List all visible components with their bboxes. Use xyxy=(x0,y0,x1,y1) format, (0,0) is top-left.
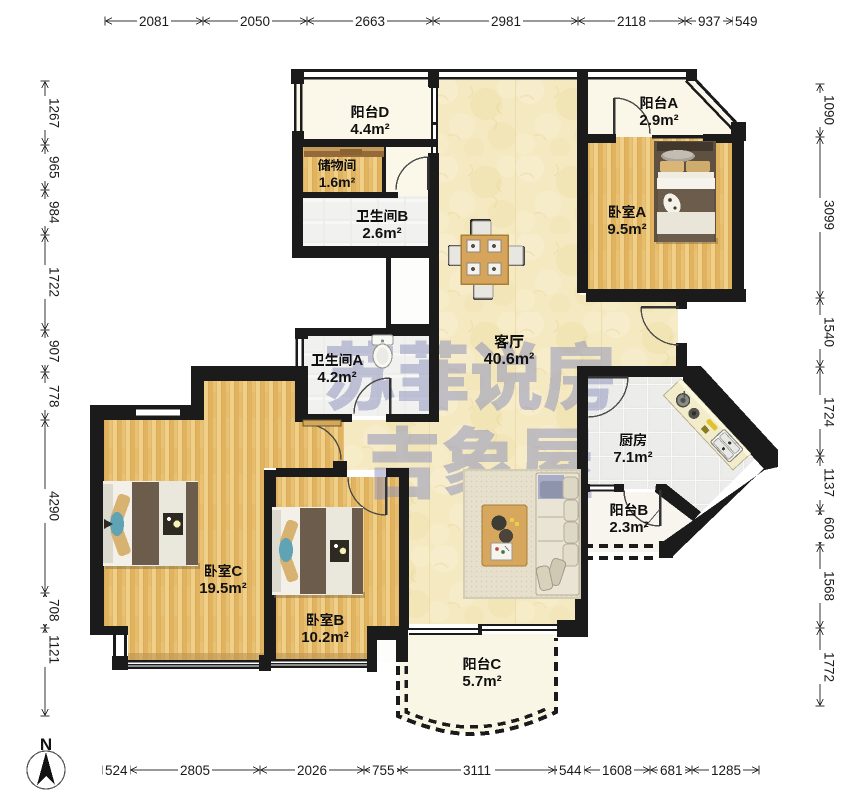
svg-text:1772: 1772 xyxy=(822,652,837,682)
svg-text:40.6m²: 40.6m² xyxy=(484,351,535,368)
svg-text:4290: 4290 xyxy=(47,491,62,521)
svg-text:755: 755 xyxy=(372,763,395,778)
svg-text:3111: 3111 xyxy=(463,763,491,778)
svg-text:10.2m²: 10.2m² xyxy=(301,629,349,646)
svg-text:1090: 1090 xyxy=(822,95,837,125)
svg-text:1267: 1267 xyxy=(47,98,62,128)
svg-text:2118: 2118 xyxy=(617,14,646,29)
svg-text:3099: 3099 xyxy=(822,200,837,230)
svg-text:984: 984 xyxy=(47,201,62,224)
svg-text:937: 937 xyxy=(698,14,721,29)
svg-text:D: D xyxy=(378,104,389,121)
svg-text:708: 708 xyxy=(47,599,62,622)
svg-text:2981: 2981 xyxy=(491,14,521,29)
svg-text:549: 549 xyxy=(735,14,758,29)
svg-text:7.1m²: 7.1m² xyxy=(613,449,652,466)
svg-text:2663: 2663 xyxy=(355,14,385,29)
svg-text:5.7m²: 5.7m² xyxy=(462,673,501,690)
svg-text:B: B xyxy=(333,612,344,629)
svg-text:1722: 1722 xyxy=(47,267,62,297)
svg-text:9.5m²: 9.5m² xyxy=(607,221,646,238)
svg-text:1568: 1568 xyxy=(822,571,837,601)
svg-text:1724: 1724 xyxy=(822,397,837,428)
svg-text:19.5m²: 19.5m² xyxy=(199,580,247,597)
svg-text:A: A xyxy=(667,95,678,112)
svg-text:2026: 2026 xyxy=(297,763,327,778)
svg-text:A: A xyxy=(352,352,363,369)
svg-text:C: C xyxy=(231,563,242,580)
svg-text:524: 524 xyxy=(105,763,128,778)
svg-text:C: C xyxy=(490,656,501,673)
svg-text:4.2m²: 4.2m² xyxy=(317,369,356,386)
svg-text:544: 544 xyxy=(559,763,582,778)
svg-text:2.3m²: 2.3m² xyxy=(609,519,648,536)
svg-text:2.9m²: 2.9m² xyxy=(639,112,678,129)
svg-text:778: 778 xyxy=(47,385,62,408)
svg-text:1137: 1137 xyxy=(822,468,837,497)
svg-text:2081: 2081 xyxy=(139,14,169,29)
svg-text:2805: 2805 xyxy=(180,763,210,778)
svg-text:1540: 1540 xyxy=(822,317,837,347)
svg-text:603: 603 xyxy=(822,517,837,540)
svg-text:681: 681 xyxy=(660,763,683,778)
svg-text:1121: 1121 xyxy=(47,635,62,664)
svg-text:N: N xyxy=(40,735,52,754)
svg-text:2.6m²: 2.6m² xyxy=(362,225,401,242)
svg-text:A: A xyxy=(635,204,646,221)
svg-text:1608: 1608 xyxy=(602,763,632,778)
svg-text:B: B xyxy=(637,502,648,519)
svg-text:1.6m²: 1.6m² xyxy=(319,174,356,190)
svg-text:B: B xyxy=(397,208,408,225)
svg-text:965: 965 xyxy=(47,156,62,179)
svg-text:907: 907 xyxy=(47,340,62,363)
svg-text:2050: 2050 xyxy=(240,14,270,29)
svg-text:1285: 1285 xyxy=(711,763,741,778)
svg-text:4.4m²: 4.4m² xyxy=(350,121,389,138)
